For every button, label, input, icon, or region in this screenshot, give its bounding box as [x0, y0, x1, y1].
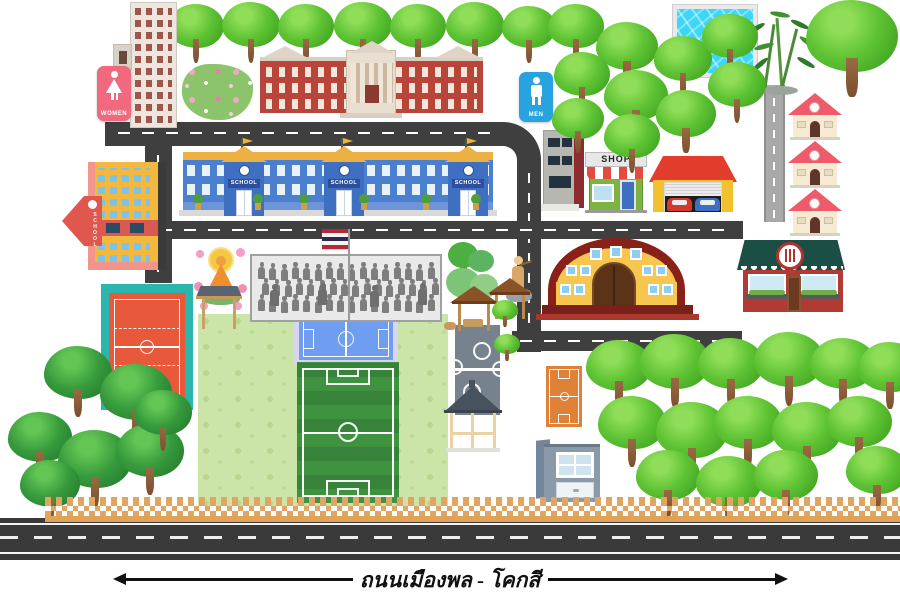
person-silhouette — [292, 299, 299, 311]
football-field — [297, 362, 399, 503]
person-silhouette — [337, 268, 344, 280]
house-2 — [788, 141, 842, 188]
person-silhouette — [405, 300, 412, 312]
men-sign-label: MEN — [519, 112, 553, 118]
deer-figure — [444, 322, 456, 330]
school-sign-yellow: SCHOOL — [89, 212, 97, 244]
right-arrow-shaft — [548, 578, 776, 581]
red-car — [667, 198, 692, 211]
men-restroom-sign: MEN — [519, 72, 553, 122]
road-dash-mid-right — [520, 340, 734, 342]
road-dash-middle — [160, 229, 734, 231]
person-silhouette — [371, 268, 378, 280]
volleyball-court — [101, 284, 193, 410]
right-arrow-icon — [775, 573, 788, 585]
flag-icon — [467, 138, 477, 144]
dormitory-building — [130, 2, 177, 128]
bottom-road — [0, 518, 900, 560]
person-silhouette — [303, 268, 310, 280]
teacher-silhouette — [270, 290, 279, 306]
gazebo — [444, 380, 502, 452]
left-arrow-shaft — [125, 578, 353, 581]
bamboo-plant — [744, 12, 824, 102]
teacher-silhouette — [318, 289, 327, 305]
person-silhouette — [352, 285, 359, 297]
school-pennant-sign: SCHOOL — [62, 196, 102, 246]
shop-store: SHOP — [585, 152, 647, 212]
auditorium — [536, 238, 699, 320]
tree — [604, 70, 668, 137]
school-sign-3: SCHOOL — [452, 180, 484, 186]
picket-fence — [45, 497, 900, 522]
teacher-silhouette — [418, 289, 427, 305]
person-silhouette — [416, 269, 423, 281]
tree — [116, 424, 184, 495]
flag-pole — [348, 229, 350, 321]
shop-awning — [587, 167, 645, 179]
tree — [656, 402, 728, 478]
tree — [772, 402, 842, 476]
person-silhouette — [258, 299, 265, 311]
teacher-silhouette — [370, 291, 379, 307]
thai-flag-icon — [322, 229, 348, 249]
lotus-flower — [236, 248, 245, 257]
person-silhouette — [296, 283, 303, 295]
man-icon — [519, 77, 553, 105]
tree — [754, 332, 824, 406]
tree — [810, 338, 876, 407]
tree — [548, 4, 604, 63]
tree — [714, 396, 782, 467]
tree — [826, 396, 892, 465]
person-silhouette — [394, 299, 401, 311]
school-sign-1: SCHOOL — [228, 180, 260, 186]
person-silhouette — [428, 299, 435, 311]
women-sign-label: WOMEN — [97, 111, 131, 117]
person-silhouette — [258, 267, 265, 279]
pool-water — [677, 9, 753, 73]
person-silhouette — [303, 300, 310, 312]
house-3 — [788, 189, 842, 236]
person-silhouette — [307, 284, 314, 296]
sala-pavilion-1 — [450, 286, 498, 336]
utility-building — [536, 438, 600, 502]
tree — [656, 90, 716, 153]
office-building — [543, 130, 584, 212]
person-silhouette — [337, 300, 344, 312]
garage — [649, 156, 737, 212]
potted-plants — [183, 192, 493, 216]
person-silhouette — [281, 301, 288, 313]
tree — [858, 342, 900, 409]
woman-icon — [97, 71, 131, 101]
tree — [502, 6, 556, 63]
flower-garden — [182, 64, 253, 120]
women-restroom-sign: WOMEN — [97, 66, 131, 121]
tree — [598, 396, 666, 467]
assembly-crowd — [252, 256, 440, 320]
restaurant-logo-icon — [776, 242, 804, 270]
school-campus-map: WOMEN SCHOOL — [0, 0, 900, 600]
tree — [554, 52, 610, 111]
restaurant — [737, 240, 845, 312]
pergola — [196, 286, 242, 334]
person-silhouette — [382, 301, 389, 313]
portico — [346, 50, 396, 118]
person-silhouette — [409, 284, 416, 296]
shop-sign-label: SHOP — [585, 154, 647, 164]
road-name-label: ถนนเมืองพล - โคกสี — [340, 564, 560, 597]
lotus-flower — [196, 250, 204, 258]
person-silhouette — [386, 285, 393, 297]
school-sign-2: SCHOOL — [328, 180, 360, 186]
tree — [8, 412, 72, 479]
assembly-area — [250, 254, 442, 322]
person-silhouette — [360, 299, 367, 311]
flag-icon — [343, 138, 353, 144]
blue-car — [695, 198, 720, 211]
basketball-court — [546, 366, 582, 427]
tree — [596, 22, 658, 87]
person-silhouette — [330, 283, 337, 295]
classic-red-building — [260, 55, 483, 118]
road-gray-dash — [773, 92, 775, 218]
flag-icon — [243, 138, 253, 144]
person-silhouette — [262, 283, 269, 295]
